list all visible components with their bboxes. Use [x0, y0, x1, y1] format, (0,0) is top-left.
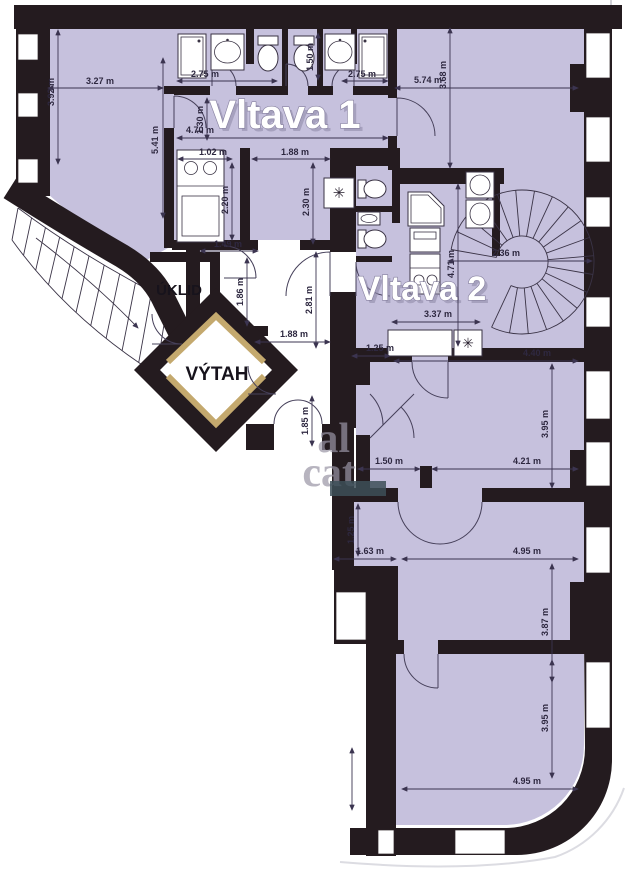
elevator-label: VÝTAH [186, 363, 249, 385]
dimension-label: 4.95 m [513, 776, 541, 786]
dimension-label: 3.95 m [540, 704, 550, 732]
dimension-label: 1.88 m [281, 147, 309, 157]
dimension-label: 4.40 m [523, 348, 551, 358]
kitchen-counter-fixture [388, 330, 452, 356]
dimension-label: 2.75 m [348, 69, 376, 79]
dimension-label: 1.88 m [280, 329, 308, 339]
dimension-label: 1.50 m [305, 43, 315, 71]
watermark-bar [330, 481, 386, 496]
toilet-fixture [358, 180, 386, 198]
dimension-label: 4.71 m [446, 250, 456, 278]
dimension-label: 1.50 m [375, 456, 403, 466]
bathtub-fixture [466, 200, 494, 228]
dimension-label: 1.85 m [300, 407, 310, 435]
dimension-label: 2.81 m [304, 286, 314, 314]
refrigerator-fixture [410, 228, 440, 252]
dimension-label: 3.92 m [46, 78, 56, 106]
dimension-label: 3.95 m [540, 410, 550, 438]
dimension-label: 2.75 m [191, 69, 219, 79]
fan-icon: ✳ [462, 335, 474, 351]
top-right-room-area [392, 28, 584, 180]
dimension-label: 4.21 m [513, 456, 541, 466]
vltava1-label: Vltava 1 [209, 93, 360, 137]
washbasin-fixture [325, 34, 355, 70]
dimension-label: 1.25 m [346, 516, 356, 544]
washbasin-fixture [358, 212, 380, 225]
dimension-label: 2.36 m [492, 248, 520, 258]
dimension-label: 1.63 m [356, 546, 384, 556]
dimension-label: 4.95 m [513, 546, 541, 556]
dimension-label: 1.30 m [195, 106, 205, 134]
dimension-label: 2.20 m [220, 186, 230, 214]
dimension-label: 1.25 m [366, 343, 394, 353]
kitchen-sink-unit-fixture [177, 150, 224, 242]
toilet-fixture [258, 36, 278, 71]
washbasin-fixture [466, 172, 494, 198]
uklid-label: ÚKLID [156, 281, 202, 299]
floor-plan-page: VÝTAH [0, 0, 640, 875]
dimension-label: 2.30 m [301, 188, 311, 216]
dimension-label: 1.02 m [199, 147, 227, 157]
toilet-fixture [358, 230, 386, 248]
dimension-label: 3.27 m [86, 76, 114, 86]
floor-plan-drawing: VÝTAH [0, 0, 640, 875]
dimension-label: 3.37 m [424, 309, 452, 319]
dimension-label: 5.41 m [150, 126, 160, 154]
washing-machine-fixture: ✳ [324, 178, 354, 208]
dimension-label: 3.87 m [540, 608, 550, 636]
dimension-label: 3.68 m [438, 61, 448, 89]
fan-icon: ✳ [333, 185, 346, 202]
vltava2-label: Vltava 2 [358, 270, 487, 308]
dimension-label: 1.49 m [214, 239, 242, 249]
dimension-label: 1.86 m [235, 278, 245, 306]
washbasin-fixture [211, 34, 244, 70]
